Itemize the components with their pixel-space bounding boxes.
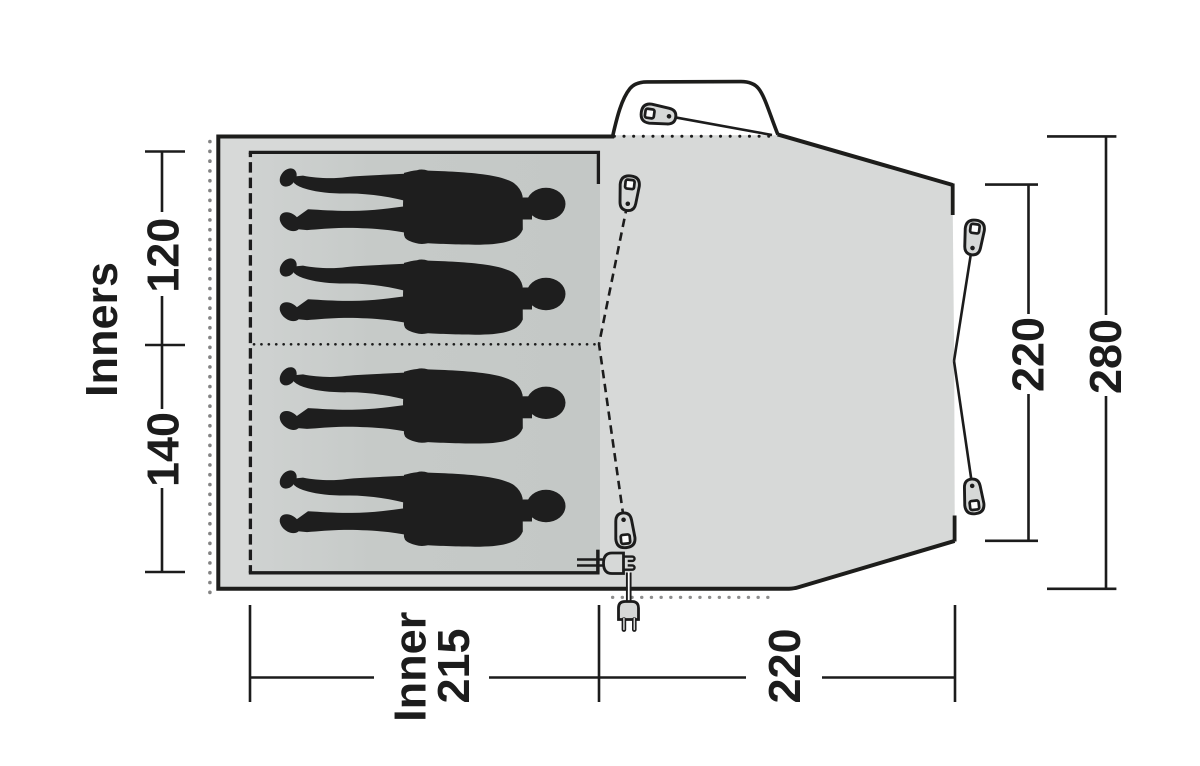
svg-text:215: 215: [428, 628, 479, 703]
svg-text:Inners: Inners: [76, 262, 127, 397]
svg-text:280: 280: [1080, 319, 1131, 394]
svg-text:220: 220: [759, 628, 810, 703]
svg-text:120: 120: [138, 218, 189, 293]
svg-text:220: 220: [1003, 317, 1054, 392]
svg-text:140: 140: [138, 412, 189, 487]
